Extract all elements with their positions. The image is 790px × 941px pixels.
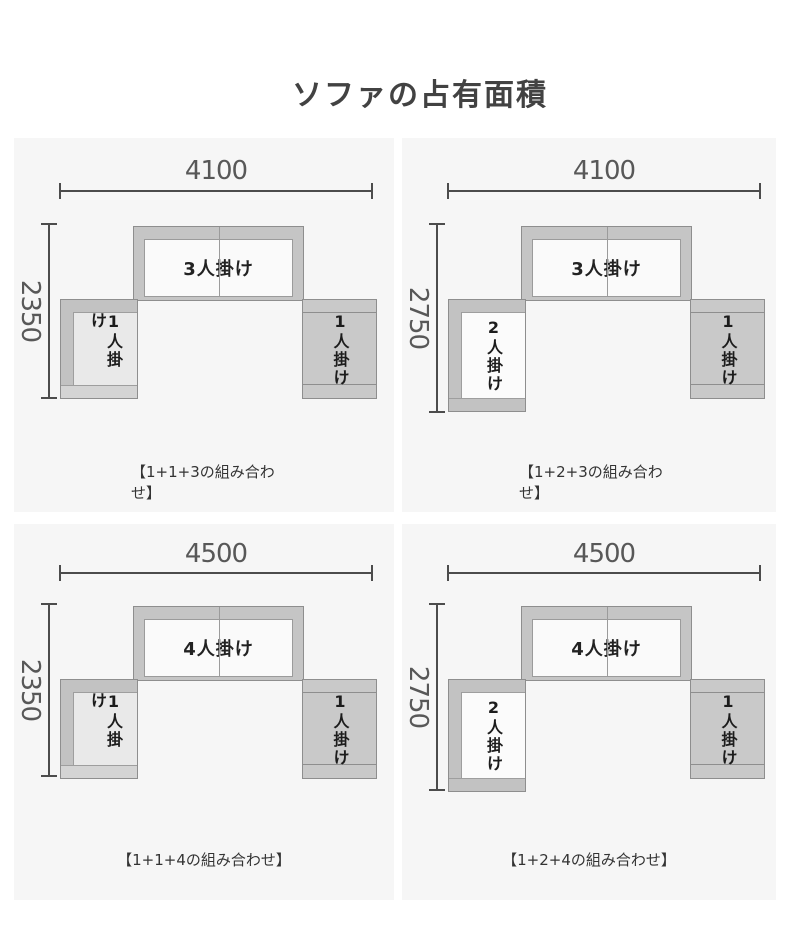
width-dimension-line [60,190,372,192]
sofa-footprint-diagram: ソファの占有面積 4100 2350 3人掛け 1人掛け 1人掛け [0,0,790,941]
right-sofa-label-area: 1人掛け [691,680,764,778]
left-sofa-label: 1人掛け [89,312,121,386]
center-sofa-4seat: 4人掛け [521,606,692,681]
width-dimension-line [60,572,372,574]
left-sofa-label-area: 2人掛け [461,692,525,779]
width-dimension-label: 4500 [448,541,760,567]
left-sofa-arm [449,398,525,411]
right-sofa-1seat: 1人掛け [302,299,377,399]
layout-panel-1-2-4: 4500 2750 4人掛け 2人掛け 1人掛け 【1+2+4の組み合わせ】 [402,524,776,900]
left-sofa-label-area: 1人掛け [73,692,137,766]
height-dimension-line [436,224,438,412]
left-sofa-arm [449,778,525,791]
combination-caption: 【1+2+3の組み合わせ】 [519,462,671,504]
layout-panel-1-2-3: 4100 2750 3人掛け 2人掛け 1人掛け 【1+2+3の組み合わせ】 [402,138,776,512]
width-dimension-label: 4100 [448,158,760,184]
left-sofa-arm [61,765,137,778]
left-sofa-2seat: 2人掛け [448,299,526,412]
width-dimension-label: 4500 [60,541,372,567]
page-title: ソファの占有面積 [292,70,548,114]
left-sofa-label: 2人掛け [485,698,501,773]
height-dimension-label: 2350 [17,271,43,351]
right-sofa-label-area: 1人掛け [303,300,376,398]
width-dimension-label: 4100 [60,158,372,184]
center-sofa-seam [219,607,220,677]
center-sofa-seam [607,227,608,297]
left-sofa-2seat: 2人掛け [448,679,526,792]
right-sofa-label: 1人掛け [720,692,736,767]
width-dimension-line [448,572,760,574]
center-sofa-3seat: 3人掛け [133,226,304,301]
left-sofa-label: 2人掛け [485,318,501,393]
right-sofa-label: 1人掛け [332,312,348,387]
right-sofa-label-area: 1人掛け [303,680,376,778]
center-sofa-seam [219,227,220,297]
combination-caption: 【1+1+4の組み合わせ】 [14,850,394,871]
layout-panel-1-1-4: 4500 2350 4人掛け 1人掛け 1人掛け 【1+1+4の組み合わせ】 [14,524,394,900]
height-dimension-label: 2750 [405,657,431,737]
left-sofa-arm [61,385,137,398]
left-sofa-label-area: 2人掛け [461,312,525,399]
left-sofa-1seat: 1人掛け [60,299,138,399]
right-sofa-label-area: 1人掛け [691,300,764,398]
right-sofa-1seat: 1人掛け [302,679,377,779]
left-sofa-1seat: 1人掛け [60,679,138,779]
height-dimension-line [436,604,438,790]
center-sofa-3seat: 3人掛け [521,226,692,301]
left-sofa-label-area: 1人掛け [73,312,137,386]
combination-caption: 【1+2+4の組み合わせ】 [402,850,776,871]
height-dimension-label: 2350 [17,650,43,730]
right-sofa-1seat: 1人掛け [690,679,765,779]
center-sofa-seam [607,607,608,677]
layout-panel-1-1-3: 4100 2350 3人掛け 1人掛け 1人掛け 【1+1+3の組み合わせ】 [14,138,394,512]
combination-caption: 【1+1+3の組み合わせ】 [131,462,283,504]
center-sofa-4seat: 4人掛け [133,606,304,681]
width-dimension-line [448,190,760,192]
height-dimension-line [48,604,50,776]
right-sofa-1seat: 1人掛け [690,299,765,399]
right-sofa-label: 1人掛け [720,312,736,387]
height-dimension-line [48,224,50,398]
height-dimension-label: 2750 [405,278,431,358]
left-sofa-label: 1人掛け [89,692,121,766]
right-sofa-label: 1人掛け [332,692,348,767]
